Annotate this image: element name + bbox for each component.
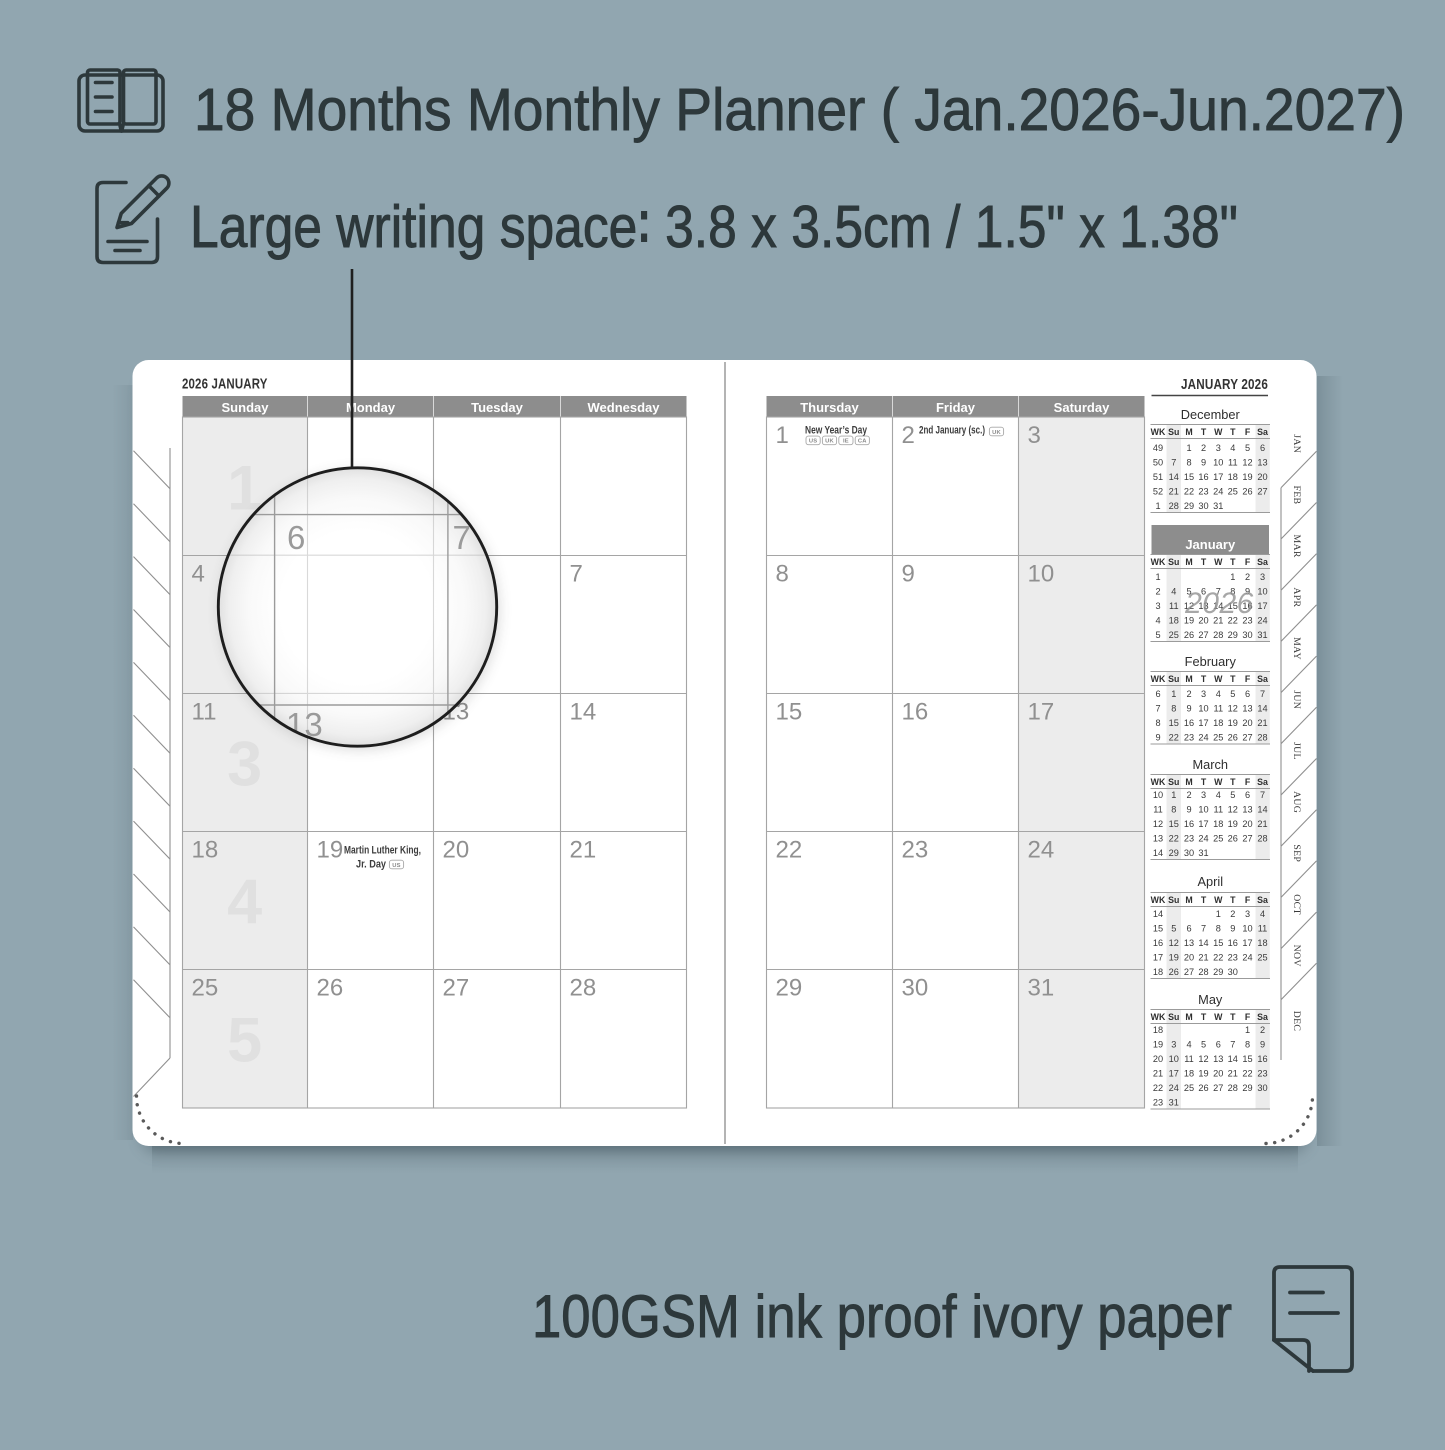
- svg-text:8: 8: [776, 561, 789, 588]
- svg-text:WK: WK: [1151, 895, 1166, 905]
- svg-text:15: 15: [1169, 718, 1179, 728]
- svg-text:10: 10: [1213, 458, 1223, 468]
- svg-text:23: 23: [902, 837, 929, 864]
- svg-text:21: 21: [1198, 953, 1208, 963]
- svg-text:12: 12: [1198, 1054, 1208, 1064]
- svg-text:11: 11: [1153, 805, 1163, 815]
- svg-text:Thursday: Thursday: [800, 400, 859, 415]
- svg-text:23: 23: [1228, 953, 1238, 963]
- svg-text:14: 14: [1198, 938, 1208, 948]
- svg-text:25: 25: [1184, 1083, 1194, 1093]
- svg-text:T: T: [1230, 895, 1236, 905]
- svg-text:5: 5: [1155, 630, 1160, 640]
- svg-text:29: 29: [1242, 1083, 1252, 1093]
- svg-text:17: 17: [1028, 699, 1055, 726]
- svg-text:14: 14: [1257, 805, 1267, 815]
- svg-text:Saturday: Saturday: [1054, 400, 1110, 415]
- svg-text:8: 8: [1245, 1040, 1250, 1050]
- svg-text:30: 30: [1257, 1083, 1267, 1093]
- svg-text:2026 JANUARY: 2026 JANUARY: [182, 377, 268, 393]
- svg-text:7: 7: [1155, 704, 1160, 714]
- svg-text:DEC: DEC: [1291, 1011, 1302, 1032]
- svg-text:11: 11: [1258, 924, 1268, 934]
- svg-text:4: 4: [192, 561, 205, 588]
- svg-text:JUN: JUN: [1291, 690, 1302, 709]
- svg-text:23: 23: [1153, 1098, 1163, 1108]
- svg-text:19: 19: [1169, 953, 1179, 963]
- svg-text:US: US: [392, 863, 400, 869]
- svg-text:6: 6: [1155, 689, 1160, 699]
- svg-text:4: 4: [1155, 616, 1160, 626]
- svg-text:24: 24: [1213, 487, 1223, 497]
- svg-text:5: 5: [1230, 790, 1235, 800]
- svg-text:9: 9: [1260, 1040, 1265, 1050]
- svg-text:8: 8: [1171, 704, 1176, 714]
- svg-text:3: 3: [1201, 689, 1206, 699]
- svg-text:20: 20: [1213, 1069, 1223, 1079]
- svg-text:1: 1: [776, 422, 789, 449]
- svg-text:23: 23: [1198, 487, 1208, 497]
- svg-text:1: 1: [1171, 790, 1176, 800]
- svg-text:52: 52: [1153, 487, 1163, 497]
- svg-text:Sa: Sa: [1257, 1012, 1268, 1022]
- svg-text:W: W: [1214, 557, 1223, 567]
- svg-text:24: 24: [1169, 1083, 1179, 1093]
- svg-text:18: 18: [1213, 718, 1223, 728]
- svg-text:24: 24: [1028, 837, 1055, 864]
- svg-text:18: 18: [1169, 616, 1179, 626]
- svg-text:3: 3: [1245, 909, 1250, 919]
- svg-text:Su: Su: [1168, 1012, 1179, 1022]
- svg-text:13: 13: [1153, 834, 1163, 844]
- svg-text:13: 13: [1242, 704, 1252, 714]
- svg-text:20: 20: [1153, 1054, 1163, 1064]
- svg-text:30: 30: [902, 975, 929, 1002]
- svg-text:11: 11: [1214, 805, 1224, 815]
- svg-text:T: T: [1230, 427, 1236, 437]
- svg-text:19: 19: [317, 837, 344, 864]
- svg-text:New Year’s Day: New Year’s Day: [805, 425, 867, 437]
- svg-text:1: 1: [1230, 572, 1235, 582]
- svg-text:Sunday: Sunday: [222, 400, 270, 415]
- svg-text:26: 26: [1198, 1083, 1208, 1093]
- svg-text:F: F: [1245, 777, 1251, 787]
- svg-text:1: 1: [1245, 1025, 1250, 1035]
- svg-text:11: 11: [1228, 458, 1238, 468]
- svg-text:13: 13: [1213, 1054, 1223, 1064]
- svg-text:4: 4: [1260, 909, 1265, 919]
- svg-text:28: 28: [570, 975, 597, 1002]
- svg-text:7: 7: [1201, 924, 1206, 934]
- svg-text:3: 3: [1260, 572, 1265, 582]
- svg-text:M: M: [1185, 674, 1192, 684]
- svg-text:F: F: [1245, 1012, 1251, 1022]
- svg-text:WK: WK: [1151, 557, 1166, 567]
- svg-text:25: 25: [1169, 630, 1179, 640]
- svg-text:5: 5: [1245, 443, 1250, 453]
- svg-text:3: 3: [1201, 790, 1206, 800]
- svg-text:26: 26: [1242, 487, 1252, 497]
- svg-text:49: 49: [1153, 443, 1163, 453]
- svg-text:24: 24: [1198, 834, 1208, 844]
- svg-text:22: 22: [776, 837, 803, 864]
- svg-text:6: 6: [1245, 790, 1250, 800]
- svg-text:6: 6: [1260, 443, 1265, 453]
- svg-text:18: 18: [1213, 819, 1223, 829]
- svg-text:31: 31: [1198, 848, 1208, 858]
- svg-text:17: 17: [1153, 953, 1163, 963]
- svg-text:Sa: Sa: [1257, 557, 1268, 567]
- svg-text:25: 25: [1213, 834, 1223, 844]
- svg-text:4: 4: [1230, 443, 1235, 453]
- svg-text:20: 20: [1184, 953, 1194, 963]
- svg-text:22: 22: [1153, 1083, 1163, 1093]
- svg-text:January: January: [1185, 537, 1236, 552]
- svg-text:29: 29: [1213, 967, 1223, 977]
- svg-text:9: 9: [1230, 924, 1235, 934]
- svg-text:7: 7: [1171, 458, 1176, 468]
- svg-text:26: 26: [1184, 630, 1194, 640]
- svg-text:9: 9: [1186, 805, 1191, 815]
- svg-text:22: 22: [1169, 834, 1179, 844]
- svg-text:100GSM ink proof ivory paper: 100GSM ink proof ivory paper: [532, 1283, 1232, 1350]
- svg-text:Wednesday: Wednesday: [587, 400, 660, 415]
- svg-text:17: 17: [1198, 718, 1208, 728]
- svg-text:T: T: [1201, 1012, 1207, 1022]
- svg-text:December: December: [1181, 407, 1241, 422]
- svg-text:12: 12: [1228, 704, 1238, 714]
- svg-text:3: 3: [1216, 443, 1221, 453]
- svg-text:10: 10: [1198, 704, 1208, 714]
- svg-text:8: 8: [1186, 458, 1191, 468]
- svg-text:WK: WK: [1151, 427, 1166, 437]
- svg-text:29: 29: [1228, 630, 1238, 640]
- svg-text:UK: UK: [992, 430, 1001, 436]
- svg-text:US: US: [809, 439, 817, 445]
- svg-text:22: 22: [1184, 487, 1194, 497]
- svg-text:APR: APR: [1291, 587, 1302, 607]
- svg-text:20: 20: [1242, 819, 1252, 829]
- svg-text:FEB: FEB: [1291, 485, 1302, 504]
- svg-text:OCT: OCT: [1291, 894, 1302, 915]
- svg-text:MAR: MAR: [1291, 534, 1302, 557]
- svg-text:T: T: [1201, 777, 1207, 787]
- svg-text:23: 23: [1184, 834, 1194, 844]
- svg-text:20: 20: [1242, 718, 1252, 728]
- svg-text:13: 13: [1242, 805, 1252, 815]
- svg-text:24: 24: [1242, 953, 1252, 963]
- svg-text:7: 7: [1260, 790, 1265, 800]
- svg-text:27: 27: [1213, 1083, 1223, 1093]
- svg-text:CA: CA: [858, 439, 867, 445]
- svg-text:Sa: Sa: [1257, 895, 1268, 905]
- svg-text:Su: Su: [1168, 674, 1179, 684]
- svg-text:23: 23: [1257, 1069, 1267, 1079]
- svg-text:24: 24: [1198, 733, 1208, 743]
- svg-text:F: F: [1245, 557, 1251, 567]
- svg-text:T: T: [1230, 1012, 1236, 1022]
- svg-text:28: 28: [1257, 733, 1267, 743]
- svg-text:9: 9: [902, 561, 915, 588]
- svg-text:2: 2: [1245, 572, 1250, 582]
- svg-text:27: 27: [1198, 630, 1208, 640]
- svg-text:15: 15: [1242, 1054, 1252, 1064]
- svg-text:10: 10: [1242, 924, 1252, 934]
- svg-text:MAY: MAY: [1291, 637, 1302, 660]
- svg-text:2: 2: [1186, 790, 1191, 800]
- svg-text:1: 1: [1216, 909, 1221, 919]
- svg-text:30: 30: [1242, 630, 1252, 640]
- svg-text:9: 9: [1155, 733, 1160, 743]
- svg-text:2: 2: [1186, 689, 1191, 699]
- svg-text:April: April: [1197, 874, 1223, 889]
- svg-text:18: 18: [1228, 472, 1238, 482]
- svg-text:15: 15: [1184, 472, 1194, 482]
- svg-text:M: M: [1185, 557, 1192, 567]
- svg-text:13: 13: [1257, 458, 1267, 468]
- svg-text:22: 22: [1213, 953, 1223, 963]
- svg-text:2: 2: [902, 422, 915, 449]
- svg-text:15: 15: [1153, 924, 1163, 934]
- svg-text:27: 27: [1257, 487, 1267, 497]
- svg-text:12: 12: [1153, 819, 1163, 829]
- svg-text:2026: 2026: [1184, 587, 1254, 620]
- svg-text:24: 24: [1257, 616, 1267, 626]
- svg-text:10: 10: [1169, 1054, 1179, 1064]
- svg-text:16: 16: [902, 699, 929, 726]
- svg-text:IE: IE: [843, 439, 849, 445]
- svg-text:14: 14: [570, 699, 597, 726]
- svg-text:8: 8: [1216, 924, 1221, 934]
- svg-text:6: 6: [287, 519, 305, 556]
- svg-text:20: 20: [443, 837, 470, 864]
- svg-text:4: 4: [1186, 1040, 1191, 1050]
- svg-text:Large writing space∶ 3.8 x 3.5: Large writing space∶ 3.8 x 3.5cm / 1.5" …: [190, 194, 1238, 260]
- svg-text:Su: Su: [1168, 895, 1179, 905]
- svg-text:10: 10: [1257, 587, 1267, 597]
- svg-text:2nd January (sc.): 2nd January (sc.): [919, 425, 985, 437]
- svg-text:16: 16: [1184, 819, 1194, 829]
- svg-text:19: 19: [1228, 819, 1238, 829]
- svg-text:Su: Su: [1168, 777, 1179, 787]
- svg-text:Su: Su: [1168, 427, 1179, 437]
- svg-text:2: 2: [1155, 587, 1160, 597]
- svg-text:17: 17: [1213, 472, 1223, 482]
- svg-text:22: 22: [1169, 733, 1179, 743]
- svg-text:3: 3: [227, 730, 262, 800]
- svg-text:16: 16: [1257, 1054, 1267, 1064]
- svg-text:30: 30: [1228, 967, 1238, 977]
- svg-text:Monday: Monday: [346, 400, 396, 415]
- svg-text:Su: Su: [1168, 557, 1179, 567]
- svg-text:31: 31: [1169, 1098, 1179, 1108]
- svg-text:21: 21: [570, 837, 597, 864]
- svg-text:9: 9: [1186, 704, 1191, 714]
- svg-text:Jr. Day: Jr. Day: [356, 859, 386, 871]
- svg-text:14: 14: [1228, 1054, 1238, 1064]
- svg-text:16: 16: [1228, 938, 1238, 948]
- svg-text:15: 15: [1213, 938, 1223, 948]
- svg-text:3: 3: [1171, 1040, 1176, 1050]
- svg-text:18: 18: [1257, 938, 1267, 948]
- svg-text:17: 17: [1169, 1069, 1179, 1079]
- svg-text:2: 2: [1201, 443, 1206, 453]
- svg-text:28: 28: [1198, 967, 1208, 977]
- svg-text:26: 26: [317, 975, 344, 1002]
- svg-text:21: 21: [1228, 1069, 1238, 1079]
- svg-text:7: 7: [1230, 1040, 1235, 1050]
- svg-text:Sa: Sa: [1257, 777, 1268, 787]
- svg-text:T: T: [1230, 557, 1236, 567]
- svg-text:M: M: [1185, 895, 1192, 905]
- svg-text:WK: WK: [1151, 1012, 1166, 1022]
- svg-text:18: 18: [192, 837, 219, 864]
- svg-text:12: 12: [1242, 458, 1252, 468]
- svg-text:W: W: [1214, 777, 1223, 787]
- svg-text:5: 5: [227, 1006, 262, 1076]
- svg-text:18: 18: [1153, 967, 1163, 977]
- svg-text:25: 25: [1213, 733, 1223, 743]
- svg-text:18: 18: [1184, 1069, 1194, 1079]
- svg-text:26: 26: [1228, 733, 1238, 743]
- svg-text:28: 28: [1257, 834, 1267, 844]
- svg-text:JANUARY 2026: JANUARY 2026: [1181, 377, 1268, 393]
- svg-text:6: 6: [1245, 689, 1250, 699]
- svg-text:22: 22: [1242, 1069, 1252, 1079]
- svg-text:T: T: [1230, 777, 1236, 787]
- svg-text:6: 6: [1186, 924, 1191, 934]
- svg-text:Friday: Friday: [936, 400, 976, 415]
- svg-text:26: 26: [1169, 967, 1179, 977]
- svg-text:31: 31: [1257, 630, 1267, 640]
- svg-text:6: 6: [1216, 1040, 1221, 1050]
- svg-text:18 Months Monthly Planner ( Ja: 18 Months Monthly Planner ( Jan.2026-Jun…: [194, 77, 1405, 143]
- svg-text:17: 17: [1198, 819, 1208, 829]
- svg-text:16: 16: [1153, 938, 1163, 948]
- svg-text:19: 19: [1242, 472, 1252, 482]
- svg-text:16: 16: [1198, 472, 1208, 482]
- svg-text:4: 4: [227, 868, 262, 938]
- svg-text:Sa: Sa: [1257, 427, 1268, 437]
- svg-text:JAN: JAN: [1291, 434, 1302, 453]
- svg-text:27: 27: [1242, 733, 1252, 743]
- svg-text:M: M: [1185, 1012, 1192, 1022]
- svg-text:4: 4: [1216, 689, 1221, 699]
- svg-text:W: W: [1214, 674, 1223, 684]
- svg-text:27: 27: [1242, 834, 1252, 844]
- svg-text:21: 21: [1169, 487, 1179, 497]
- svg-text:21: 21: [1257, 718, 1267, 728]
- svg-text:13: 13: [1184, 938, 1194, 948]
- svg-text:21: 21: [1257, 819, 1267, 829]
- svg-text:March: March: [1192, 757, 1228, 772]
- svg-text:51: 51: [1153, 472, 1163, 482]
- svg-text:14: 14: [1169, 472, 1179, 482]
- svg-text:10: 10: [1153, 790, 1163, 800]
- svg-text:M: M: [1185, 777, 1192, 787]
- svg-text:5: 5: [1201, 1040, 1206, 1050]
- svg-text:F: F: [1245, 427, 1251, 437]
- svg-text:14: 14: [1153, 909, 1163, 919]
- svg-text:9: 9: [1201, 458, 1206, 468]
- svg-text:F: F: [1245, 895, 1251, 905]
- svg-text:SEP: SEP: [1291, 844, 1302, 862]
- svg-text:20: 20: [1257, 472, 1267, 482]
- svg-text:29: 29: [1184, 501, 1194, 511]
- svg-text:W: W: [1214, 1012, 1223, 1022]
- svg-text:17: 17: [1242, 938, 1252, 948]
- svg-text:11: 11: [1184, 1054, 1194, 1064]
- svg-text:1: 1: [1186, 443, 1191, 453]
- svg-text:5: 5: [1230, 689, 1235, 699]
- svg-text:Martin Luther King,: Martin Luther King,: [344, 845, 421, 857]
- svg-text:31: 31: [1213, 501, 1223, 511]
- svg-text:19: 19: [1228, 718, 1238, 728]
- svg-text:23: 23: [1184, 733, 1194, 743]
- svg-text:3: 3: [1028, 422, 1041, 449]
- svg-text:29: 29: [1169, 848, 1179, 858]
- svg-text:14: 14: [1153, 848, 1163, 858]
- svg-text:8: 8: [1171, 805, 1176, 815]
- svg-text:February: February: [1185, 654, 1237, 669]
- svg-text:T: T: [1201, 674, 1207, 684]
- svg-text:T: T: [1201, 427, 1207, 437]
- svg-text:5: 5: [1171, 924, 1176, 934]
- svg-text:15: 15: [776, 699, 803, 726]
- svg-text:30: 30: [1198, 501, 1208, 511]
- svg-text:4: 4: [1171, 587, 1176, 597]
- svg-text:18: 18: [1153, 1025, 1163, 1035]
- svg-text:2: 2: [1260, 1025, 1265, 1035]
- svg-text:30: 30: [1184, 848, 1194, 858]
- svg-text:27: 27: [443, 975, 470, 1002]
- svg-text:14: 14: [1257, 704, 1267, 714]
- svg-text:4: 4: [1216, 790, 1221, 800]
- svg-text:29: 29: [776, 975, 803, 1002]
- svg-text:25: 25: [1257, 953, 1267, 963]
- svg-text:19: 19: [1198, 1069, 1208, 1079]
- svg-text:10: 10: [1028, 561, 1055, 588]
- svg-text:WK: WK: [1151, 777, 1166, 787]
- svg-text:10: 10: [1198, 805, 1208, 815]
- svg-text:28: 28: [1213, 630, 1223, 640]
- svg-text:11: 11: [1214, 704, 1224, 714]
- svg-text:1: 1: [1155, 572, 1160, 582]
- svg-text:May: May: [1198, 992, 1223, 1007]
- svg-text:F: F: [1245, 674, 1251, 684]
- svg-text:WK: WK: [1151, 674, 1166, 684]
- svg-text:1: 1: [1155, 501, 1160, 511]
- svg-text:11: 11: [1169, 601, 1179, 611]
- svg-text:7: 7: [1260, 689, 1265, 699]
- svg-text:12: 12: [1228, 805, 1238, 815]
- svg-text:25: 25: [192, 975, 219, 1002]
- svg-text:11: 11: [192, 699, 217, 726]
- svg-text:1: 1: [1171, 689, 1176, 699]
- svg-text:UK: UK: [825, 439, 834, 445]
- svg-text:NOV: NOV: [1291, 945, 1302, 967]
- svg-text:16: 16: [1184, 718, 1194, 728]
- svg-text:25: 25: [1228, 487, 1238, 497]
- svg-text:Sa: Sa: [1257, 674, 1268, 684]
- svg-text:T: T: [1230, 674, 1236, 684]
- svg-text:2: 2: [1230, 909, 1235, 919]
- svg-text:JUL: JUL: [1291, 742, 1302, 760]
- svg-text:W: W: [1214, 427, 1223, 437]
- svg-text:AUG: AUG: [1291, 791, 1302, 813]
- svg-text:Tuesday: Tuesday: [471, 400, 524, 415]
- svg-text:17: 17: [1257, 601, 1267, 611]
